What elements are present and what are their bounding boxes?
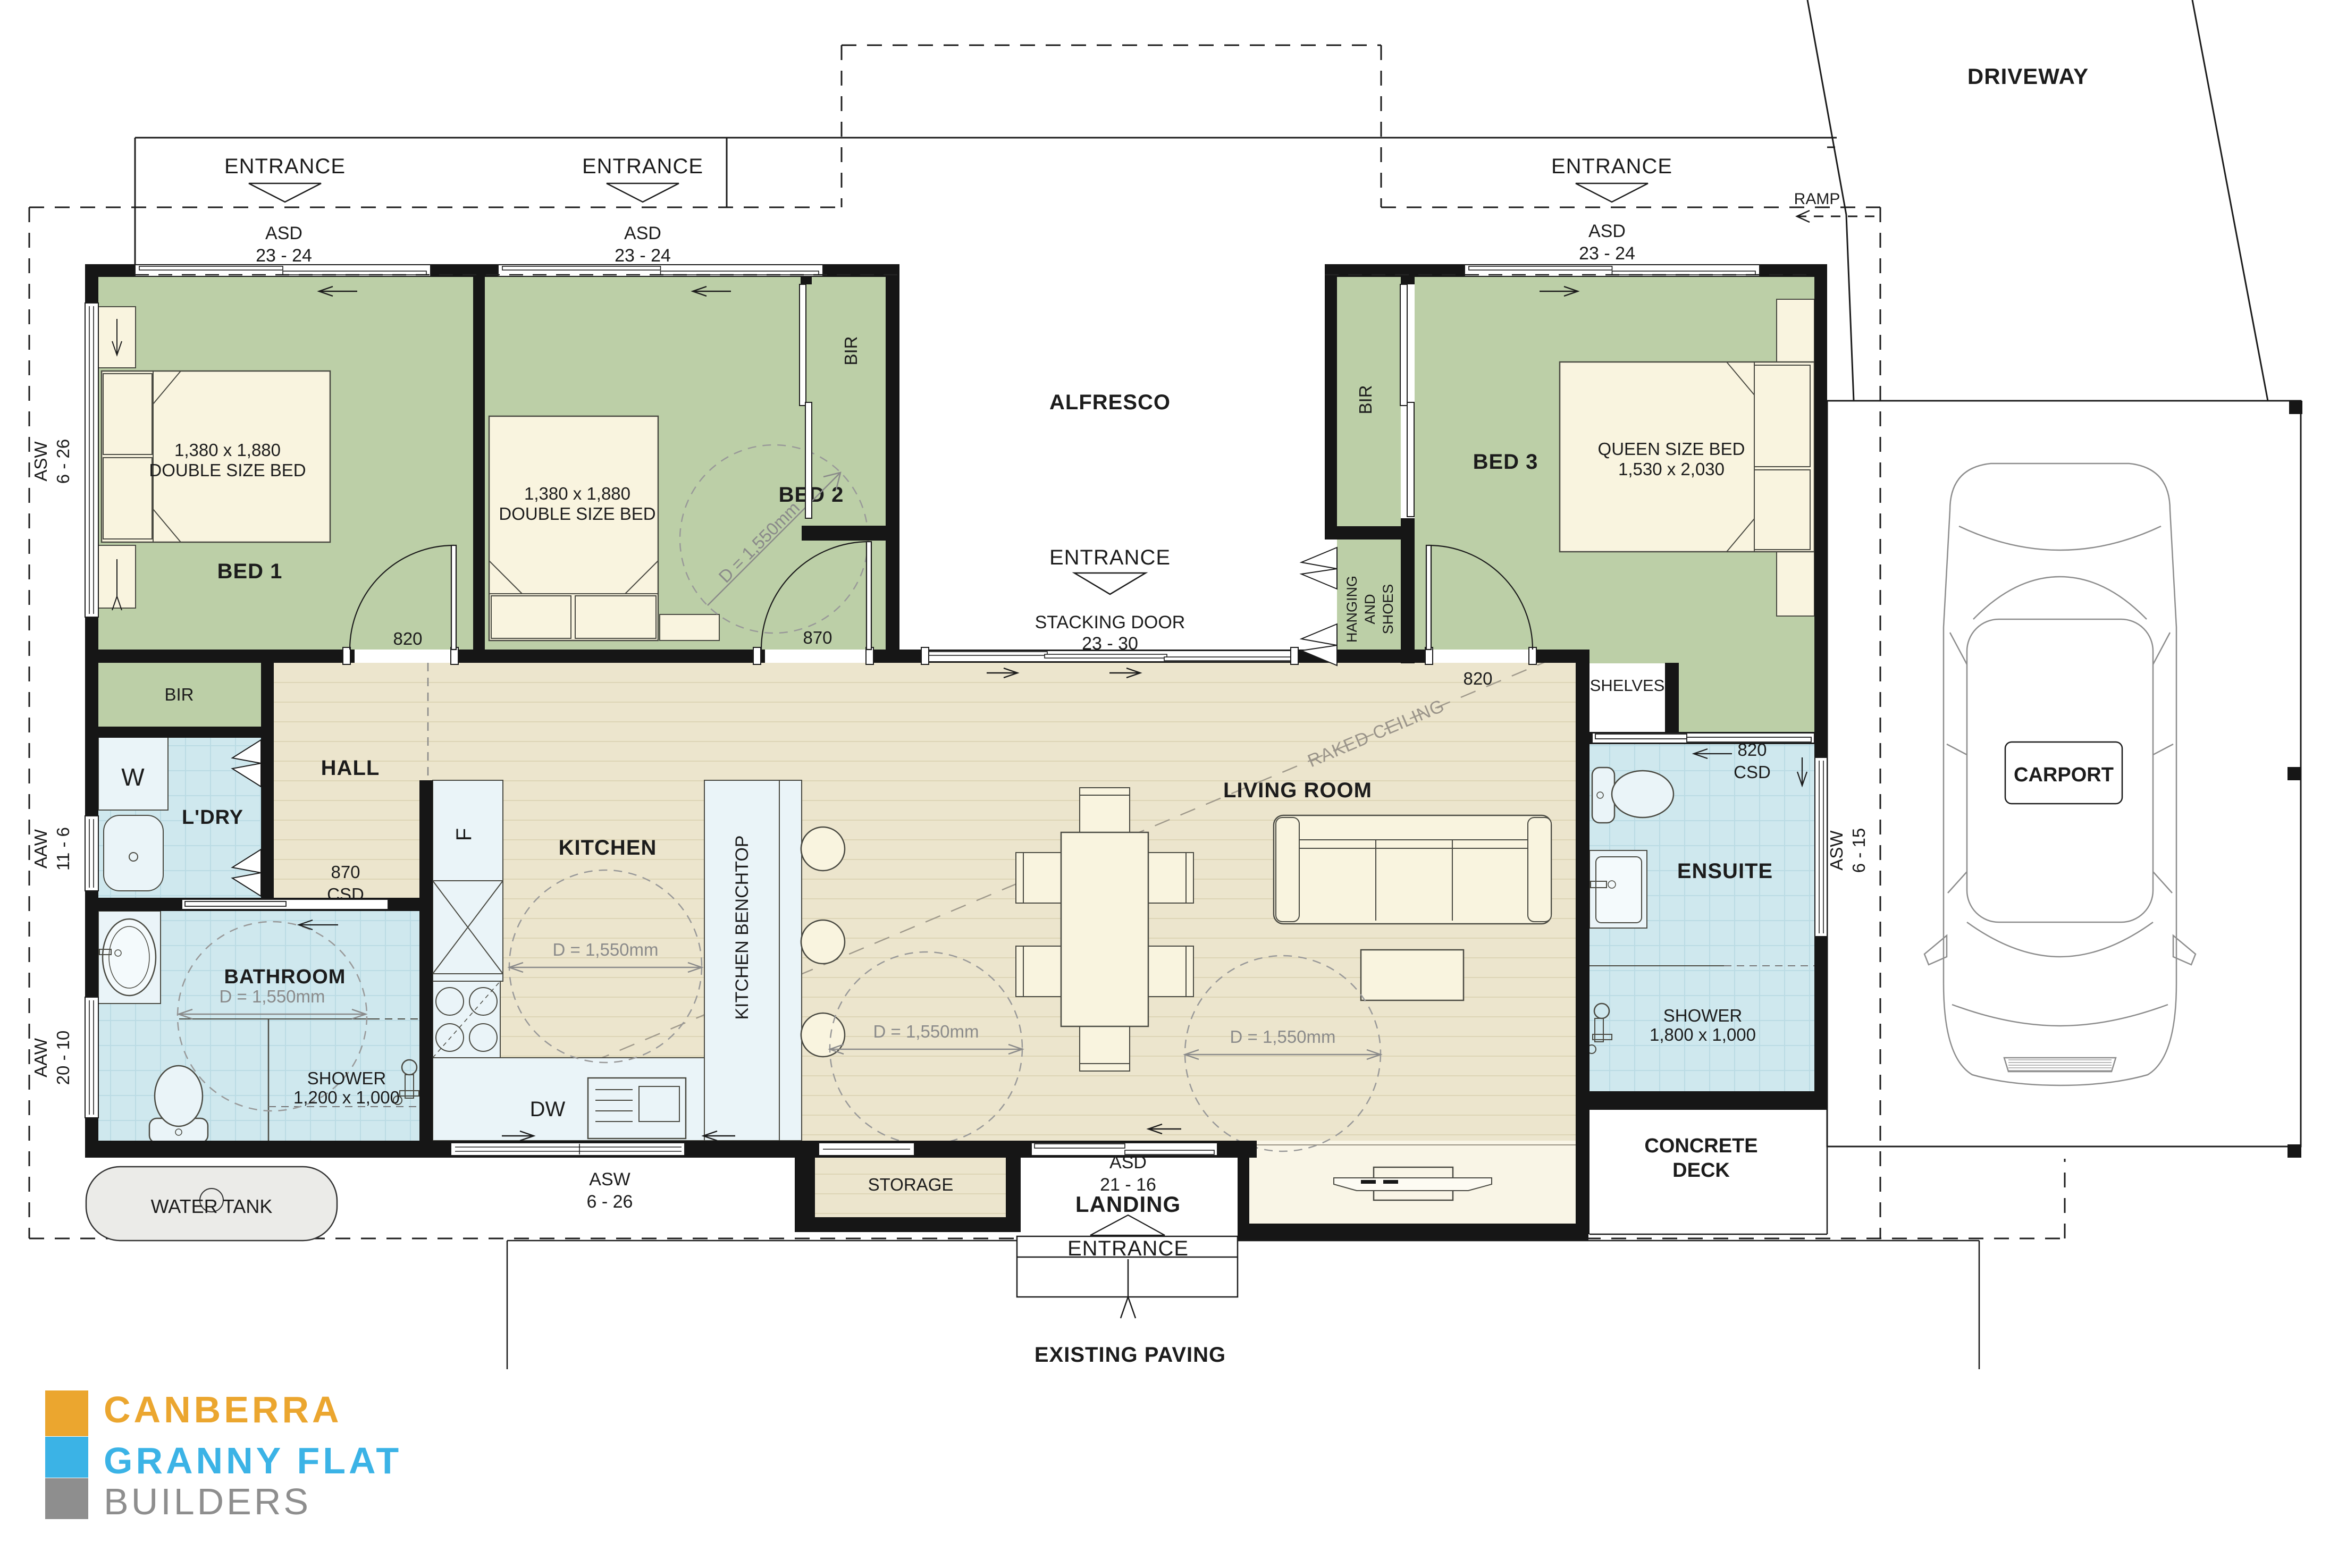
svg-text:DW: DW (530, 1098, 566, 1121)
svg-text:BATHROOM: BATHROOM (224, 966, 346, 988)
svg-text:6 - 26: 6 - 26 (587, 1192, 633, 1212)
svg-text:820: 820 (1463, 669, 1492, 688)
svg-text:23 - 24: 23 - 24 (615, 246, 671, 266)
svg-text:ASW: ASW (1827, 830, 1846, 871)
svg-text:D = 1,550mm: D = 1,550mm (553, 940, 659, 959)
svg-text:RAMP: RAMP (1794, 190, 1840, 208)
svg-text:ENTRANCE: ENTRANCE (224, 155, 346, 178)
svg-text:SHOES: SHOES (1380, 584, 1396, 635)
svg-text:KITCHEN: KITCHEN (559, 836, 657, 859)
svg-text:CARPORT: CARPORT (2014, 764, 2114, 786)
svg-text:LIVING ROOM: LIVING ROOM (1223, 779, 1372, 802)
svg-text:WATER TANK: WATER TANK (151, 1195, 273, 1217)
svg-text:ALFRESCO: ALFRESCO (1049, 391, 1171, 414)
svg-text:F: F (452, 828, 476, 841)
svg-text:870: 870 (331, 862, 360, 882)
svg-text:1,200 x 1,000: 1,200 x 1,000 (293, 1088, 400, 1107)
svg-text:DRIVEWAY: DRIVEWAY (1967, 64, 2089, 89)
svg-text:D = 1,550mm: D = 1,550mm (873, 1022, 979, 1041)
svg-text:6 - 15: 6 - 15 (1849, 828, 1869, 873)
svg-text:ENTRANCE: ENTRANCE (1551, 155, 1672, 178)
svg-text:KITCHEN BENCHTOP: KITCHEN BENCHTOP (732, 836, 752, 1020)
svg-text:BUILDERS: BUILDERS (104, 1481, 311, 1522)
svg-text:DOUBLE SIZE BED: DOUBLE SIZE BED (149, 460, 306, 480)
svg-text:ENTRANCE: ENTRANCE (1067, 1237, 1189, 1260)
svg-text:STORAGE: STORAGE (868, 1175, 954, 1194)
svg-text:BIR: BIR (1356, 385, 1375, 414)
svg-text:11 - 6: 11 - 6 (53, 827, 73, 871)
svg-text:STACKING DOOR: STACKING DOOR (1035, 612, 1185, 633)
svg-text:DOUBLE SIZE BED: DOUBLE SIZE BED (499, 504, 655, 524)
svg-text:ASD: ASD (1588, 221, 1626, 241)
svg-text:D = 1,550mm: D = 1,550mm (220, 987, 325, 1006)
svg-text:6 - 26: 6 - 26 (53, 439, 73, 484)
svg-text:ASW: ASW (589, 1169, 630, 1190)
svg-text:D = 1,550mm: D = 1,550mm (1230, 1027, 1336, 1047)
svg-text:ASD: ASD (1109, 1152, 1147, 1173)
svg-text:1,800 x 1,000: 1,800 x 1,000 (1650, 1025, 1756, 1044)
svg-text:SHOWER: SHOWER (307, 1068, 386, 1088)
svg-text:23 - 24: 23 - 24 (1579, 243, 1635, 264)
svg-text:CSD: CSD (1734, 762, 1771, 782)
svg-text:BIR: BIR (841, 336, 861, 365)
svg-text:SHELVES: SHELVES (1590, 676, 1665, 695)
svg-text:SHOWER: SHOWER (1663, 1006, 1743, 1025)
svg-text:23 - 30: 23 - 30 (1082, 634, 1138, 654)
svg-text:HANGING: HANGING (1344, 576, 1360, 643)
svg-text:23 - 24: 23 - 24 (256, 246, 312, 266)
svg-text:HALL: HALL (321, 756, 380, 780)
svg-text:AAW: AAW (31, 1038, 51, 1077)
svg-text:BED 3: BED 3 (1473, 450, 1538, 474)
svg-text:1,380 x 1,880: 1,380 x 1,880 (524, 484, 630, 503)
svg-text:DECK: DECK (1672, 1159, 1730, 1182)
svg-text:ASW: ASW (31, 441, 51, 482)
svg-text:W: W (121, 763, 145, 791)
svg-text:AND: AND (1362, 594, 1378, 624)
svg-text:ENTRANCE: ENTRANCE (1049, 546, 1171, 569)
svg-text:1,530 x 2,030: 1,530 x 2,030 (1618, 459, 1725, 479)
svg-text:1,380 x 1,880: 1,380 x 1,880 (174, 440, 281, 460)
svg-text:BED 1: BED 1 (217, 560, 283, 583)
svg-text:ASD: ASD (624, 223, 661, 243)
svg-text:ASD: ASD (265, 223, 302, 243)
svg-text:ENTRANCE: ENTRANCE (582, 155, 703, 178)
svg-text:EXISTING PAVING: EXISTING PAVING (1035, 1343, 1226, 1367)
svg-text:20 - 10: 20 - 10 (53, 1031, 73, 1085)
svg-text:CONCRETE: CONCRETE (1644, 1135, 1757, 1157)
svg-text:820: 820 (393, 629, 422, 648)
svg-text:L'DRY: L'DRY (182, 806, 243, 829)
svg-text:QUEEN SIZE BED: QUEEN SIZE BED (1598, 439, 1745, 459)
svg-text:AAW: AAW (31, 829, 51, 869)
svg-text:GRANNY FLAT: GRANNY FLAT (104, 1440, 402, 1481)
svg-text:CANBERRA: CANBERRA (104, 1389, 342, 1430)
svg-text:870: 870 (803, 628, 832, 647)
svg-text:BIR: BIR (164, 685, 194, 704)
svg-text:ENSUITE: ENSUITE (1677, 859, 1773, 883)
svg-text:LANDING: LANDING (1075, 1192, 1181, 1217)
